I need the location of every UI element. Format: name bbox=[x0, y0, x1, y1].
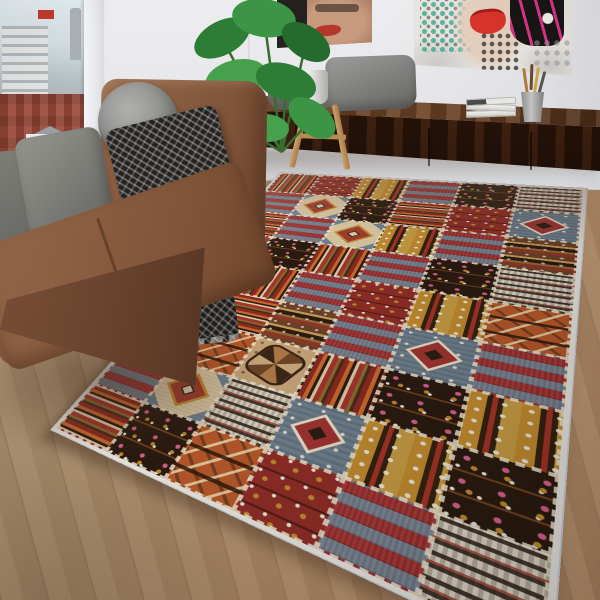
leather-sofa bbox=[0, 0, 600, 600]
living-room-scene bbox=[0, 0, 600, 600]
